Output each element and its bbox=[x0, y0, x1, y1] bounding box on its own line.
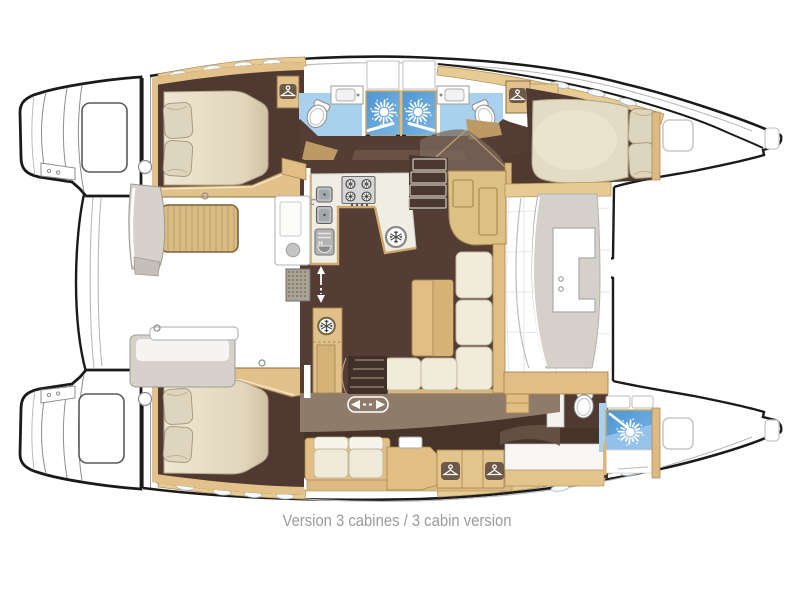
svg-text:Version 3 cabines / 3 cabin ve: Version 3 cabines / 3 cabin version bbox=[283, 511, 512, 530]
